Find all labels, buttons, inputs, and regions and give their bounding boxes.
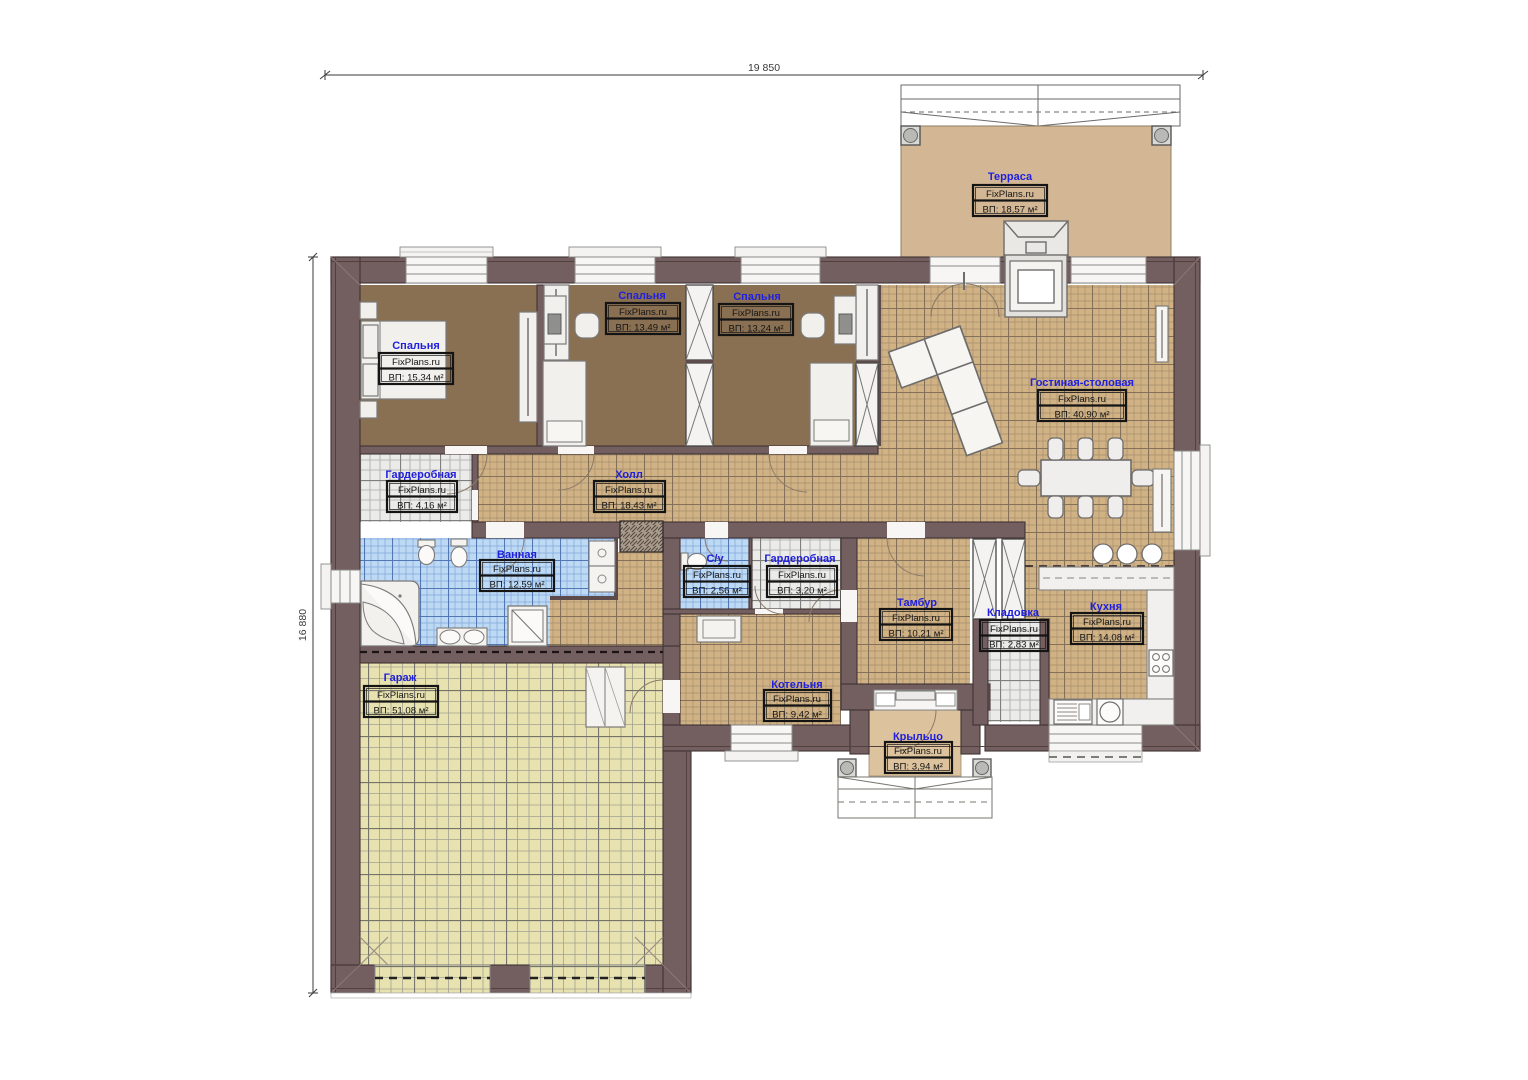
svg-text:FixPlans.ru: FixPlans.ru — [377, 690, 425, 701]
svg-text:ВП: 12,59 м²: ВП: 12,59 м² — [489, 580, 545, 591]
svg-text:Спальня: Спальня — [733, 291, 781, 303]
svg-text:FixPlans.ru: FixPlans.ru — [605, 485, 653, 496]
svg-text:ВП: 3,20 м²: ВП: 3,20 м² — [777, 586, 828, 597]
svg-text:FixPlans.ru: FixPlans.ru — [619, 307, 667, 318]
svg-text:19 850: 19 850 — [748, 62, 780, 74]
svg-text:Гостиная-столовая: Гостиная-столовая — [1030, 377, 1134, 389]
svg-text:FixPlans.ru: FixPlans.ru — [1058, 394, 1106, 405]
svg-text:ВП: 18,43 м²: ВП: 18,43 м² — [601, 501, 657, 512]
svg-text:ВП: 18,57 м²: ВП: 18,57 м² — [982, 205, 1038, 216]
svg-text:FixPlans.ru: FixPlans.ru — [693, 570, 741, 581]
svg-text:FixPlans.ru: FixPlans.ru — [990, 624, 1038, 635]
svg-text:ВП: 2,83 м²: ВП: 2,83 м² — [989, 640, 1040, 651]
svg-text:FixPlans.ru: FixPlans.ru — [392, 357, 440, 368]
svg-text:16 880: 16 880 — [297, 609, 309, 641]
svg-text:ВП: 15,34 м²: ВП: 15,34 м² — [388, 373, 444, 384]
svg-text:Кладовка: Кладовка — [987, 607, 1040, 619]
svg-text:FixPlans.ru: FixPlans.ru — [778, 570, 826, 581]
svg-text:ВП: 10,21 м²: ВП: 10,21 м² — [888, 629, 944, 640]
svg-text:FixPlans.ru: FixPlans.ru — [493, 564, 541, 575]
svg-text:FixPlans.ru: FixPlans.ru — [398, 485, 446, 496]
svg-text:FixPlans.ru: FixPlans.ru — [732, 308, 780, 319]
svg-text:FixPlans.ru: FixPlans.ru — [773, 694, 821, 705]
svg-text:Тамбур: Тамбур — [897, 597, 937, 609]
svg-text:Спальня: Спальня — [618, 290, 666, 302]
svg-text:Гараж: Гараж — [384, 672, 417, 684]
svg-text:ВП: 13,24 м²: ВП: 13,24 м² — [728, 324, 784, 335]
svg-text:Гардеробная: Гардеробная — [764, 553, 835, 565]
svg-text:ВП: 4,16 м²: ВП: 4,16 м² — [397, 501, 448, 512]
svg-text:Кухня: Кухня — [1090, 601, 1122, 613]
svg-text:Терраса: Терраса — [988, 171, 1033, 183]
svg-text:ВП: 13,49 м²: ВП: 13,49 м² — [615, 323, 671, 334]
svg-text:ВП: 40,90 м²: ВП: 40,90 м² — [1054, 410, 1110, 421]
svg-text:ВП: 3,94 м²: ВП: 3,94 м² — [893, 762, 944, 773]
svg-text:ВП: 2,56 м²: ВП: 2,56 м² — [692, 586, 743, 597]
svg-text:Холл: Холл — [615, 469, 643, 481]
svg-text:FixPlans.ru: FixPlans.ru — [892, 613, 940, 624]
svg-text:Гардеробная: Гардеробная — [385, 469, 456, 481]
svg-text:FixPlans.ru: FixPlans.ru — [1083, 617, 1131, 628]
svg-text:ВП: 9,42 м²: ВП: 9,42 м² — [772, 710, 823, 721]
svg-text:FixPlans.ru: FixPlans.ru — [894, 746, 942, 757]
svg-text:ВП: 14,08 м²: ВП: 14,08 м² — [1079, 633, 1135, 644]
svg-text:С/у: С/у — [706, 553, 724, 565]
svg-text:Спальня: Спальня — [392, 340, 440, 352]
svg-text:ВП: 51,08 м²: ВП: 51,08 м² — [373, 706, 429, 717]
svg-text:FixPlans.ru: FixPlans.ru — [986, 189, 1034, 200]
